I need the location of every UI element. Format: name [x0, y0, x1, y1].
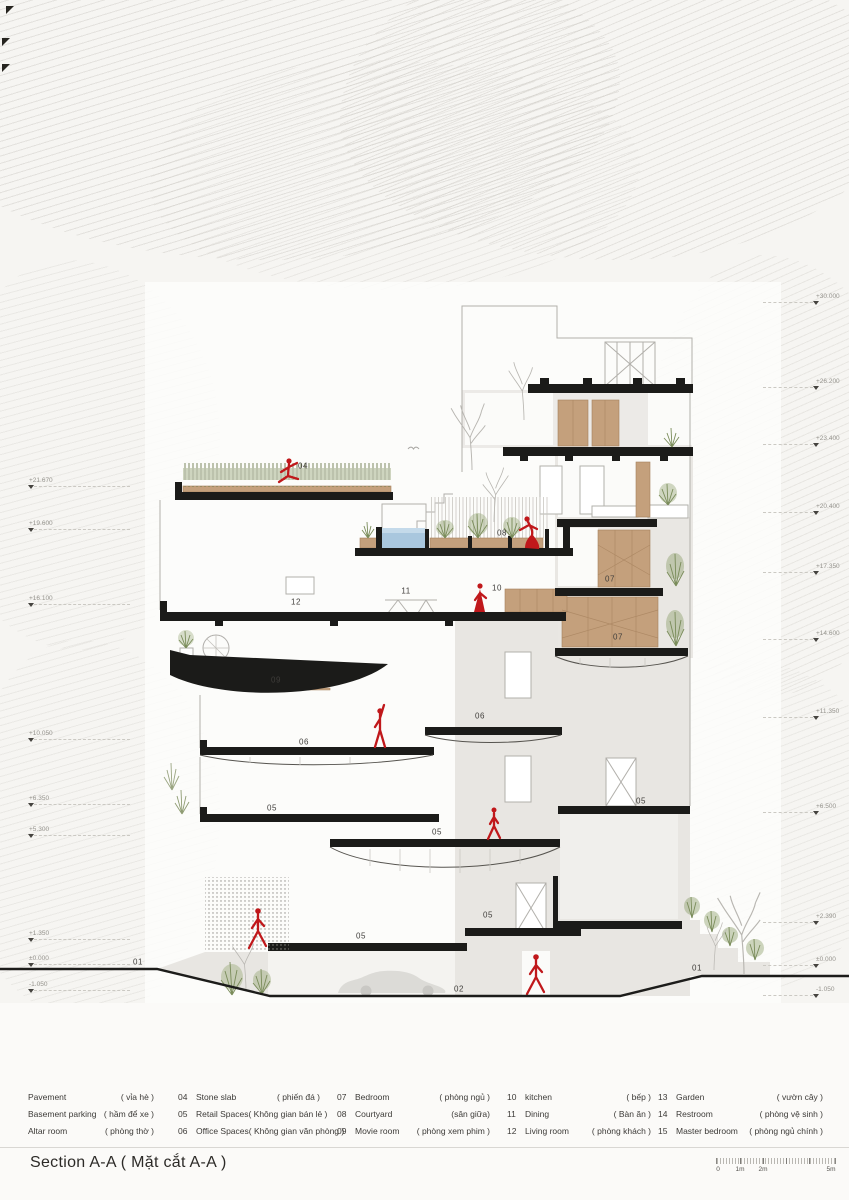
room-label: 09 — [271, 676, 281, 685]
scale-ruler — [716, 1158, 836, 1164]
elevation-marker: +19.600 — [28, 521, 130, 532]
scale-label: 5m — [826, 1166, 835, 1173]
scale-label: 2m — [758, 1166, 767, 1173]
title-divider — [0, 1147, 849, 1148]
legend-entry: 04Stone slab( phiến đá ) — [178, 1088, 320, 1105]
elevation-marker: +26.200 — [763, 379, 840, 390]
room-label: 10 — [492, 584, 502, 593]
room-label: 05 — [267, 804, 277, 813]
legend-entry: 07Bedroom( phòng ngủ ) — [337, 1088, 490, 1105]
drawing-sheet: 04 08 12 11 10 07 07 09 06 06 05 05 05 0… — [0, 0, 849, 1200]
elevation-marker: +14.600 — [763, 631, 840, 642]
legend-entry: 15Master bedroom( phòng ngủ chính ) — [658, 1122, 823, 1139]
elevation-marker: ±0.000 — [763, 957, 836, 968]
figure-standing — [474, 583, 486, 612]
room-label: 11 — [401, 587, 410, 596]
scale-label: 0 — [716, 1166, 720, 1173]
elevation-marker: ±0.000 — [28, 956, 130, 967]
gravel-hatch — [205, 877, 289, 952]
legend-column: 07Bedroom( phòng ngủ ) 08Courtyard(sân g… — [337, 1088, 490, 1139]
elevation-marker: +2.390 — [763, 914, 836, 925]
legend-entry: 14Restroom( phòng vệ sinh ) — [658, 1105, 823, 1122]
level-triangle-icon — [813, 301, 819, 305]
elevation-marker: +16.100 — [28, 596, 130, 607]
legend-entry: Altar room( phòng thờ ) — [28, 1122, 154, 1139]
bird-icon — [408, 447, 419, 449]
room-label: 05 — [483, 911, 493, 920]
elevation-marker: +21.670 — [28, 478, 130, 489]
level-triangle-icon — [813, 571, 819, 575]
room-label: 12 — [291, 598, 301, 607]
room-label: 08 — [497, 529, 507, 538]
level-triangle-icon — [813, 443, 819, 447]
legend-entry: 11Dining( Bàn ăn ) — [507, 1105, 651, 1122]
level-triangle-icon — [813, 386, 819, 390]
legend-column: 13Garden( vườn cây ) 14Restroom( phòng v… — [658, 1088, 823, 1139]
elevation-marker: +17.350 — [763, 564, 840, 575]
elevation-marker: -1.050 — [28, 982, 130, 993]
room-label: 04 — [298, 462, 308, 471]
elevation-marker: +5.300 — [28, 827, 130, 838]
legend-entry: 06Office Spaces( Không gian văn phòng ) — [178, 1122, 320, 1139]
elevation-marker: -1.050 — [763, 987, 834, 998]
page-title: Section A-A ( Mặt cắt A-A ) — [30, 1154, 227, 1172]
room-label: 07 — [613, 633, 623, 642]
legend-entry: 12Living room( phòng khách ) — [507, 1122, 651, 1139]
room-label: 05 — [432, 828, 442, 837]
level-triangle-icon — [813, 994, 819, 998]
legend-column: 04Stone slab( phiến đá ) 05Retail Spaces… — [178, 1088, 320, 1139]
level-triangle-icon — [813, 638, 819, 642]
scale-label: 1m — [735, 1166, 744, 1173]
elevation-marker: +20.400 — [763, 504, 840, 515]
figure-arm-raised — [375, 705, 385, 747]
legend-entry: 13Garden( vườn cây ) — [658, 1088, 823, 1105]
room-label: 02 — [454, 985, 464, 994]
level-triangle-icon — [813, 716, 819, 720]
legend-column: 10kitchen( bếp ) 11Dining( Bàn ăn ) 12Li… — [507, 1088, 651, 1139]
legend-entry: Basement parking( hầm để xe ) — [28, 1105, 154, 1122]
level-triangle-icon — [813, 921, 819, 925]
room-label: 05 — [356, 932, 366, 941]
elevation-marker: +10.050 — [28, 731, 130, 742]
elevation-marker: +11.350 — [763, 709, 839, 720]
room-label: 06 — [475, 712, 485, 721]
elevation-marker: +1.350 — [28, 931, 130, 942]
elevation-marker: +6.350 — [28, 796, 130, 807]
level-triangle-icon — [813, 511, 819, 515]
scale-bar: 0 1m 2m 5m — [716, 1158, 836, 1176]
room-label: 01 — [133, 958, 143, 967]
elevation-marker: +30.000 — [763, 294, 840, 305]
room-label: 06 — [299, 738, 309, 747]
elevation-marker: +23.400 — [763, 436, 840, 447]
level-triangle-icon — [813, 811, 819, 815]
legend-entry: 09Movie room( phòng xem phim ) — [337, 1122, 490, 1139]
legend-entry: 10kitchen( bếp ) — [507, 1088, 651, 1105]
room-label: 05 — [636, 797, 646, 806]
legend-entry: 05Retail Spaces( Không gian bán lẻ ) — [178, 1105, 320, 1122]
legend-entry: Pavement( vỉa hè ) — [28, 1088, 154, 1105]
elevation-marker: +6.500 — [763, 804, 836, 815]
legend-column: Pavement( vỉa hè ) Basement parking( hầm… — [28, 1088, 154, 1139]
legend-entry: 08Courtyard(sân giữa) — [337, 1105, 490, 1122]
room-label: 07 — [605, 575, 615, 584]
room-label: 01 — [692, 964, 702, 973]
level-triangle-icon — [813, 964, 819, 968]
pool-water — [382, 528, 425, 548]
